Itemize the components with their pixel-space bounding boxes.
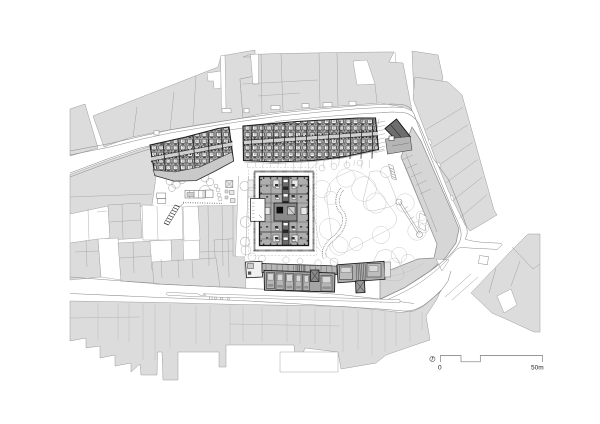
svg-text:0: 0 <box>438 365 442 372</box>
svg-text:50m: 50m <box>531 365 544 372</box>
